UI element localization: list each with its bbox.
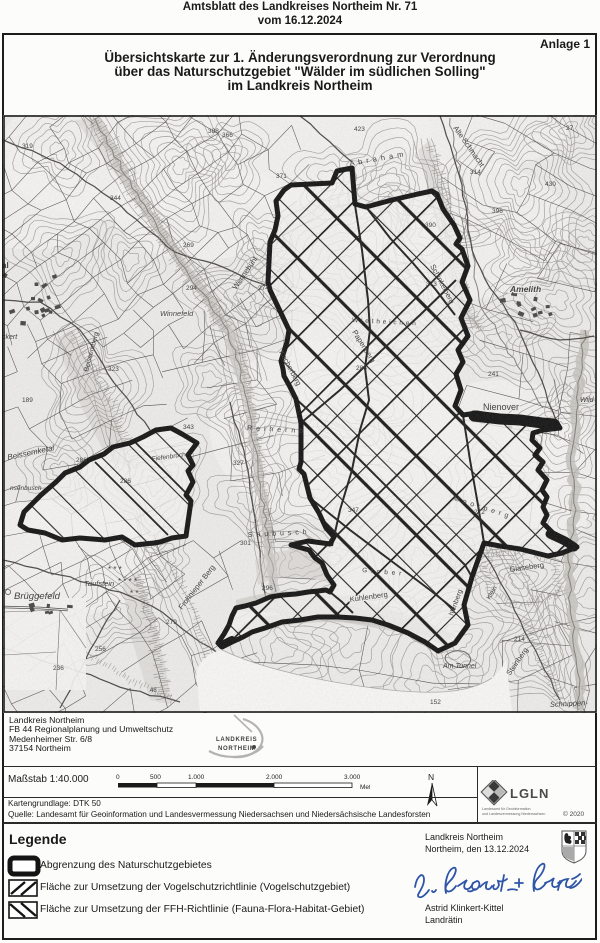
svg-text:500: 500 [150, 774, 161, 781]
svg-text:1.000: 1.000 [188, 774, 205, 781]
svg-text:NORTHEIM: NORTHEIM [218, 746, 256, 752]
svg-text:0: 0 [116, 774, 120, 781]
svg-text:2.000: 2.000 [266, 774, 283, 781]
svg-text:Meter: Meter [360, 784, 370, 791]
svg-text:3.000: 3.000 [344, 774, 361, 781]
svg-text:LANDKREIS: LANDKREIS [216, 737, 257, 743]
svg-text:und Landesvermessung Niedersac: und Landesvermessung Niedersachsen [482, 812, 545, 816]
svg-text:Landesamt für Geoinformation: Landesamt für Geoinformation [482, 807, 531, 811]
svg-text:LGLN: LGLN [510, 786, 549, 801]
svg-text:N: N [428, 772, 434, 782]
